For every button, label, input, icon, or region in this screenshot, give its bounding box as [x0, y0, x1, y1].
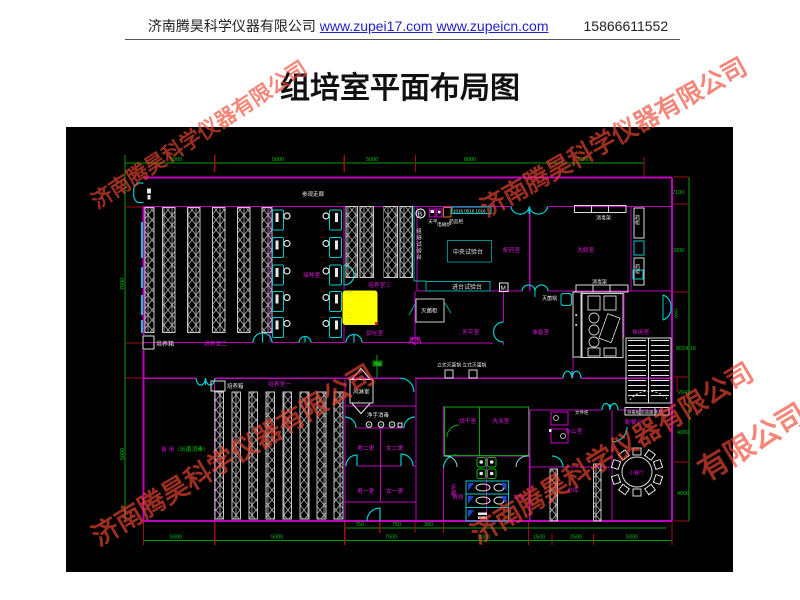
svg-text:灭菌锅: 灭菌锅 [542, 295, 557, 302]
svg-text:5000: 5000 [272, 157, 284, 163]
svg-text:净手消毒: 净手消毒 [367, 411, 390, 419]
svg-text:培养箱: 培养箱 [156, 340, 174, 348]
svg-text:1016 0516 1016: 1016 0516 1016 [453, 209, 486, 214]
svg-text:8000: 8000 [578, 157, 590, 163]
svg-text:备 用（出菌消毒）: 备 用（出菌消毒） [161, 445, 209, 453]
svg-text:男二更: 男二更 [357, 445, 375, 452]
svg-text:准备室: 准备室 [532, 328, 550, 336]
svg-text:5000: 5000 [271, 535, 283, 541]
svg-text:1500: 1500 [674, 308, 679, 319]
svg-text:培养室二: 培养室二 [204, 340, 227, 348]
svg-text:参观走廊: 参观走廊 [302, 190, 325, 198]
svg-text:烘干室: 烘干室 [459, 417, 477, 425]
svg-text:风淋室: 风淋室 [353, 388, 370, 396]
svg-text:7000: 7000 [120, 278, 126, 290]
svg-text:培养室一: 培养室一 [268, 380, 291, 388]
svg-text:洗瓶室: 洗瓶室 [577, 246, 595, 254]
svg-text:文件柜: 文件柜 [575, 409, 589, 416]
svg-text:750: 750 [374, 362, 382, 367]
svg-text:灭菌柜: 灭菌柜 [421, 307, 438, 315]
svg-text:1500: 1500 [533, 535, 545, 541]
svg-text:天平室: 天平室 [462, 328, 480, 336]
svg-text:4000: 4000 [677, 491, 689, 497]
svg-text:走廊: 走廊 [449, 483, 456, 497]
svg-text:8024.16: 8024.16 [676, 346, 696, 352]
svg-text:750: 750 [355, 522, 364, 528]
svg-text:消毒柜 实验服 水箱: 消毒柜 实验服 水箱 [627, 409, 663, 416]
svg-text:男一更: 男一更 [357, 488, 375, 495]
svg-text:培养室三: 培养室三 [368, 281, 391, 289]
svg-text:配药室: 配药室 [503, 246, 521, 254]
svg-text:5000: 5000 [366, 157, 378, 163]
svg-text:7500: 7500 [385, 535, 397, 541]
svg-text:小餐厅: 小餐厅 [629, 470, 644, 477]
svg-text:消毒架: 消毒架 [592, 279, 607, 286]
svg-text:5000: 5000 [170, 157, 182, 163]
svg-text:洗涤室: 洗涤室 [492, 417, 510, 425]
svg-text:2100: 2100 [672, 190, 684, 196]
svg-text:培养箱: 培养箱 [227, 382, 244, 390]
svg-text:4000: 4000 [677, 430, 689, 436]
svg-text:380: 380 [424, 522, 433, 528]
svg-text:立式灭菌锅 立式灭菌锅: 立式灭菌锅 立式灭菌锅 [437, 362, 487, 369]
svg-text:8000: 8000 [464, 157, 476, 163]
svg-text:750: 750 [392, 522, 401, 528]
svg-text:驯化室: 驯化室 [366, 329, 384, 337]
svg-text:女二更: 女二更 [386, 444, 404, 452]
svg-text:B: B [418, 212, 423, 219]
svg-text:配餐间: 配餐间 [625, 418, 643, 426]
svg-text:5000: 5000 [626, 535, 638, 541]
svg-text:办公室: 办公室 [565, 427, 583, 435]
svg-text:2500: 2500 [570, 535, 582, 541]
svg-text:M: M [501, 285, 506, 292]
svg-text:进台试验台: 进台试验台 [452, 283, 482, 291]
svg-text:休闲室: 休闲室 [632, 328, 650, 336]
svg-text:消毒架: 消毒架 [596, 215, 611, 222]
svg-text:5000: 5000 [170, 535, 182, 541]
svg-text:5000: 5000 [120, 448, 126, 460]
svg-text:药柜: 药柜 [634, 214, 640, 226]
svg-text:6000: 6000 [672, 248, 684, 254]
svg-text:中央试验台: 中央试验台 [453, 248, 483, 256]
svg-text:8000: 8000 [478, 535, 490, 541]
svg-text:女厕: 女厕 [513, 493, 525, 501]
svg-text:组培试验台: 组培试验台 [415, 227, 422, 261]
svg-text:药品柜: 药品柜 [449, 218, 464, 225]
svg-text:2042: 2042 [678, 390, 690, 396]
svg-text:接种室: 接种室 [303, 271, 321, 279]
svg-text:女一更: 女一更 [386, 487, 404, 495]
svg-text:仓库: 仓库 [567, 486, 579, 494]
svg-text:药柜: 药柜 [634, 263, 640, 275]
